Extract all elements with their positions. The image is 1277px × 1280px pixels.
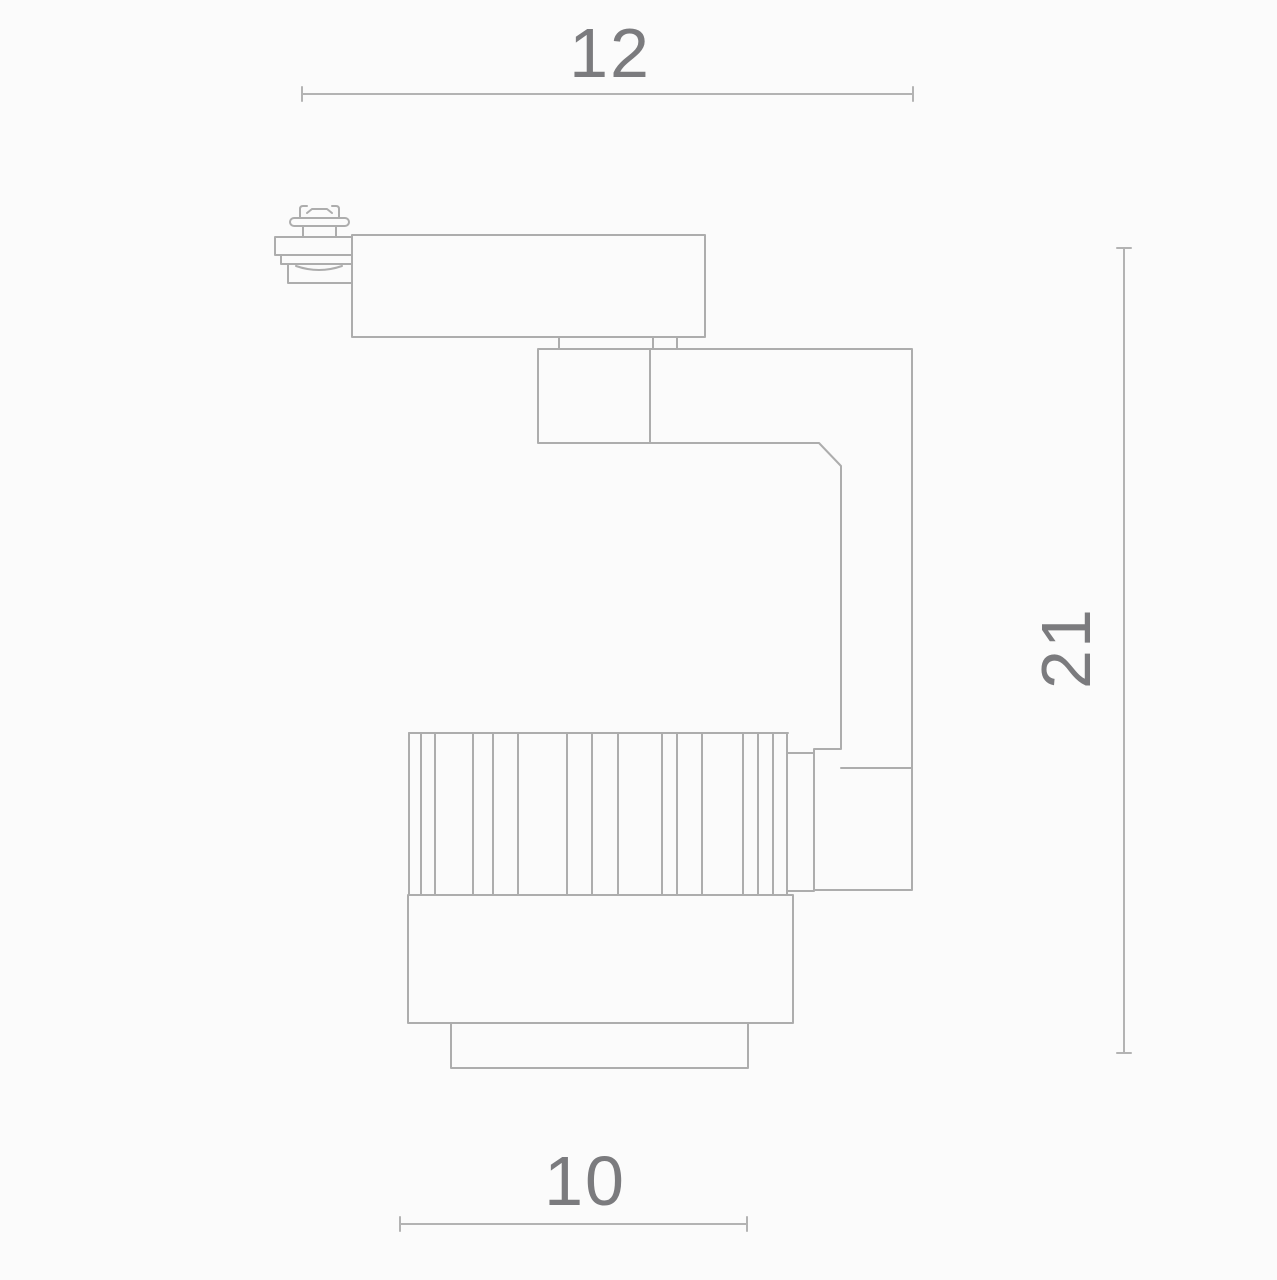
contact-flange — [290, 218, 349, 226]
connector-step — [281, 255, 354, 264]
arm-outline — [538, 349, 912, 890]
side-height-label: 21 — [1026, 607, 1106, 689]
head-body — [408, 895, 793, 1023]
heatsink-fins — [409, 733, 787, 895]
mounting-arm — [538, 337, 912, 891]
dimension-side-height — [1117, 248, 1131, 1053]
head-bezel — [451, 1023, 748, 1068]
technical-drawing-canvas: 12 21 10 — [0, 0, 1277, 1280]
track-adapter — [275, 206, 705, 337]
contact-dome — [307, 209, 332, 213]
top-width-label: 12 — [569, 13, 651, 93]
bottom-width-label: 10 — [544, 1141, 626, 1221]
contact-hook-right — [332, 206, 339, 218]
connector-block-upper — [275, 237, 352, 255]
contact-hook-left — [300, 206, 307, 218]
adapter-housing — [352, 235, 705, 337]
lamp-head — [408, 733, 793, 1068]
